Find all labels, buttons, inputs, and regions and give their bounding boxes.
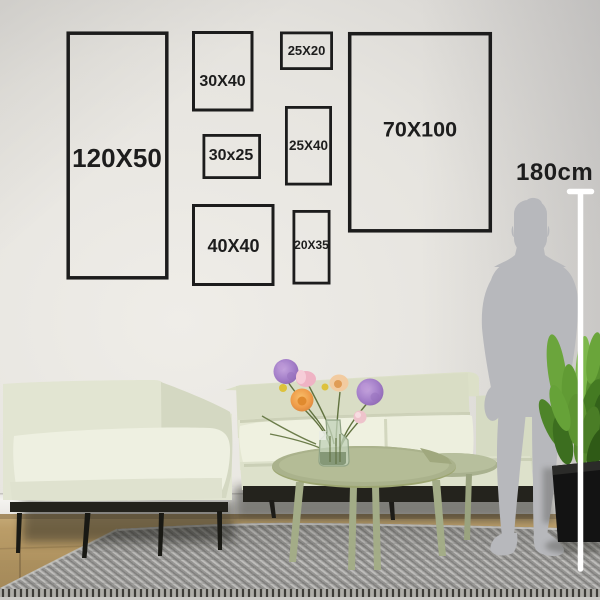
svg-text:70X100: 70X100 [383, 118, 457, 142]
svg-text:25X20: 25X20 [288, 43, 326, 58]
svg-text:180cm: 180cm [516, 159, 593, 186]
svg-text:30x25: 30x25 [209, 147, 254, 164]
svg-text:25X40: 25X40 [289, 138, 328, 153]
svg-text:30X40: 30X40 [199, 73, 245, 90]
svg-text:20X35: 20X35 [294, 238, 329, 252]
svg-text:120X50: 120X50 [72, 143, 162, 173]
svg-text:40X40: 40X40 [207, 236, 259, 256]
